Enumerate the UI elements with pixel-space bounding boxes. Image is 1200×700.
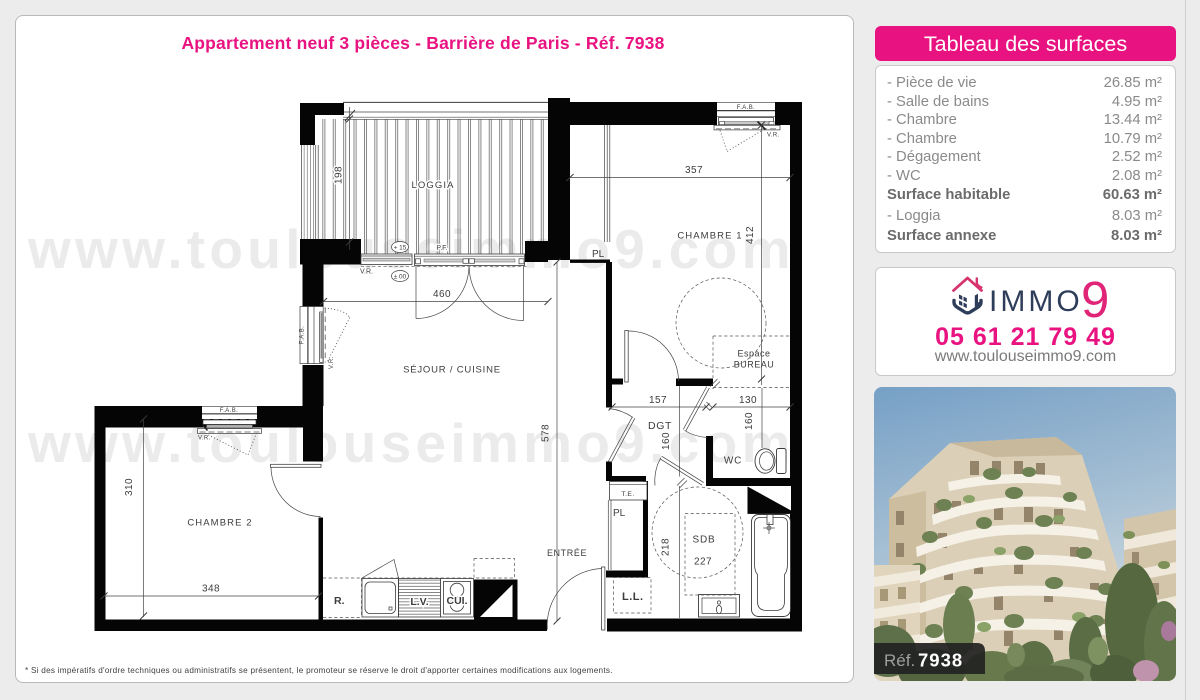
svg-text:R.: R. bbox=[334, 595, 345, 607]
svg-text:V.R.: V.R. bbox=[329, 356, 335, 369]
svg-text:P.F.: P.F. bbox=[436, 245, 447, 252]
svg-text:ENTRÉE: ENTRÉE bbox=[547, 548, 587, 558]
svg-text:CHAMBRE 2: CHAMBRE 2 bbox=[187, 518, 252, 529]
svg-text:578: 578 bbox=[541, 424, 552, 442]
svg-text:7938: 7938 bbox=[918, 650, 963, 671]
svg-text:218: 218 bbox=[661, 538, 672, 556]
svg-text:L.L.: L.L. bbox=[622, 591, 644, 603]
svg-text:SDB: SDB bbox=[693, 535, 716, 546]
svg-text:PL: PL bbox=[613, 508, 626, 519]
svg-text:L.V.: L.V. bbox=[410, 596, 428, 608]
svg-text:157: 157 bbox=[649, 395, 667, 406]
svg-text:160: 160 bbox=[661, 432, 672, 450]
svg-text:+ 15: + 15 bbox=[394, 245, 407, 252]
svg-text:198: 198 bbox=[334, 166, 345, 184]
svg-text:IMMO: IMMO bbox=[989, 285, 1083, 318]
svg-text:V.R.: V.R. bbox=[767, 133, 780, 139]
svg-text:BUREAU: BUREAU bbox=[734, 360, 775, 370]
svg-text:412: 412 bbox=[745, 226, 756, 244]
svg-text:F.A.B.: F.A.B. bbox=[300, 326, 306, 344]
svg-text:CHAMBRE 1: CHAMBRE 1 bbox=[677, 231, 742, 242]
svg-text:160: 160 bbox=[744, 412, 755, 430]
svg-text:CUI.: CUI. bbox=[447, 595, 468, 607]
svg-text:130: 130 bbox=[739, 395, 757, 406]
svg-text:Réf.: Réf. bbox=[884, 651, 915, 670]
svg-text:WC: WC bbox=[724, 456, 742, 467]
svg-text:T.E.: T.E. bbox=[621, 491, 634, 498]
svg-text:227: 227 bbox=[694, 557, 712, 568]
svg-text:Espace: Espace bbox=[737, 349, 770, 359]
svg-text:SÉJOUR / CUISINE: SÉJOUR / CUISINE bbox=[403, 365, 501, 376]
svg-text:348: 348 bbox=[202, 584, 220, 595]
svg-text:V.R.: V.R. bbox=[198, 436, 211, 442]
svg-text:LOGGIA: LOGGIA bbox=[411, 180, 454, 191]
svg-text:± 00: ± 00 bbox=[394, 274, 407, 281]
svg-text:PL: PL bbox=[592, 249, 605, 260]
svg-text:9: 9 bbox=[1081, 271, 1109, 323]
svg-text:V.R.: V.R. bbox=[360, 269, 373, 276]
svg-text:460: 460 bbox=[433, 289, 451, 300]
svg-text:DGT: DGT bbox=[648, 420, 672, 432]
svg-text:357: 357 bbox=[685, 165, 703, 176]
svg-text:F.A.B.: F.A.B. bbox=[220, 408, 238, 414]
svg-text:310: 310 bbox=[124, 478, 135, 496]
